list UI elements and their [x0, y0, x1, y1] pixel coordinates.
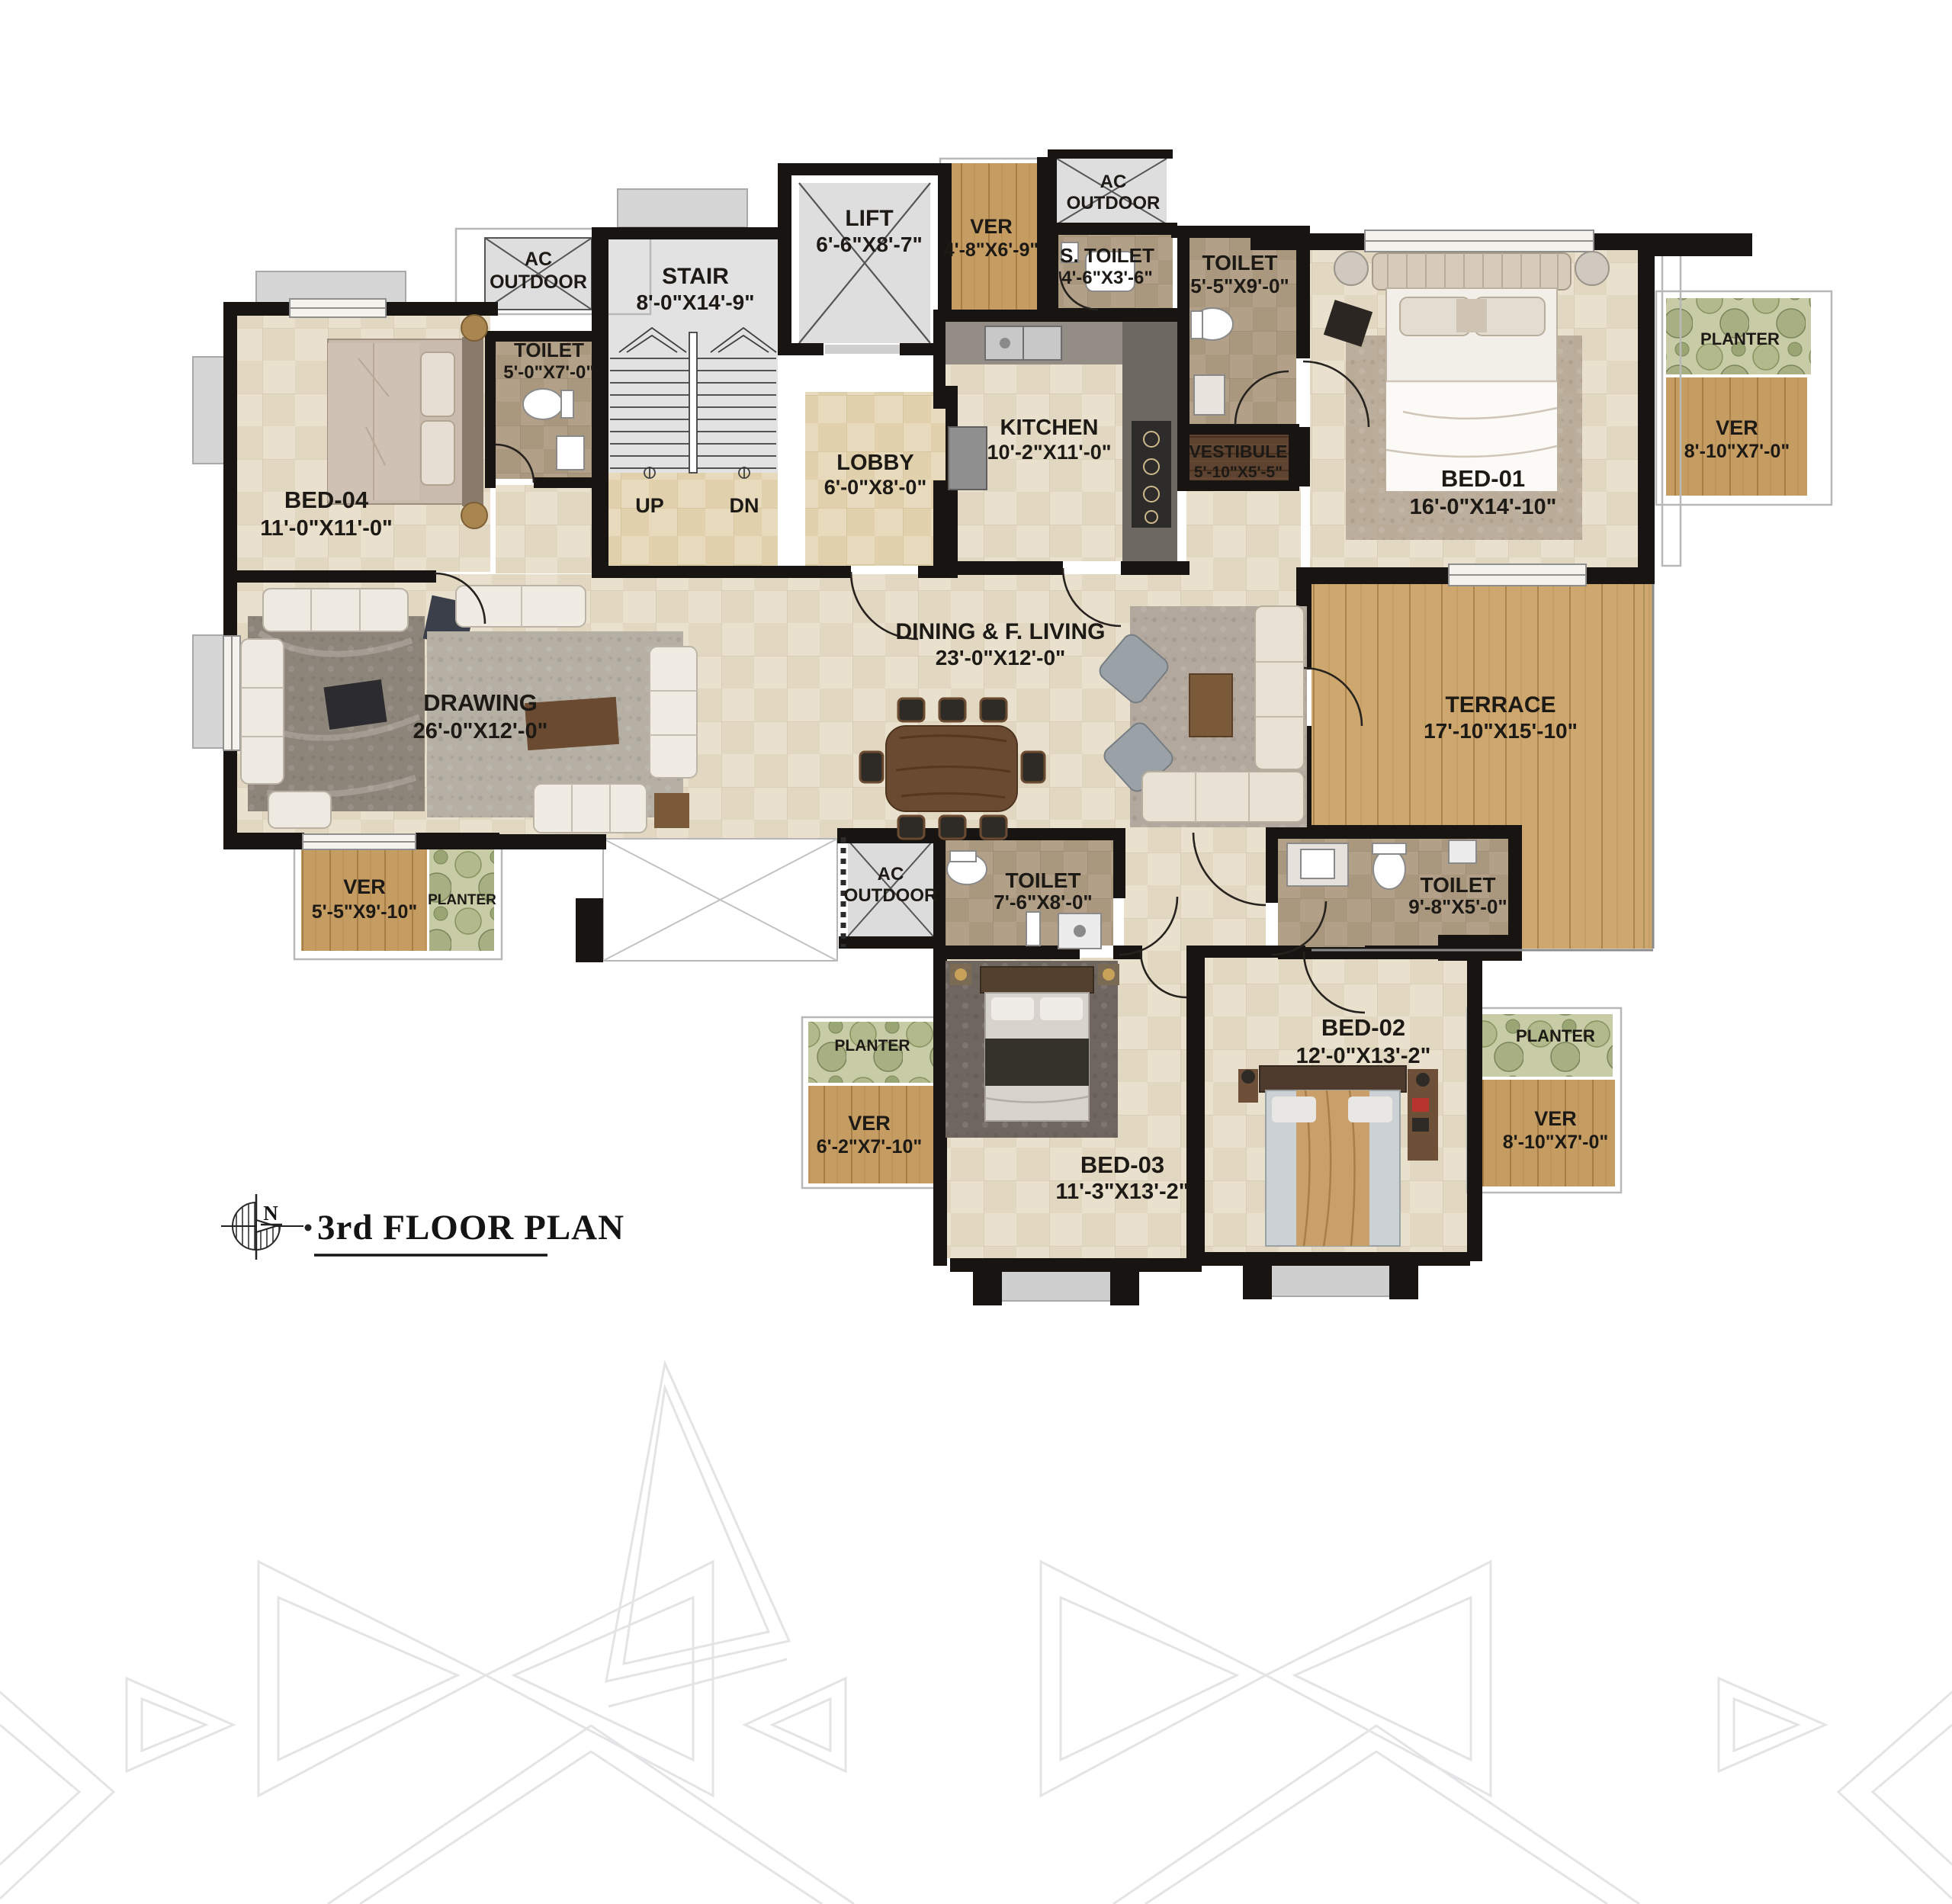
label-lift-dims: 6'-6"X8'-7" [816, 233, 922, 256]
label-toilet-b04-dims: 5'-0"X7'-0" [503, 362, 595, 383]
bed03-furniture [945, 961, 1119, 1138]
label-vestibule: VESTIBULE [1189, 441, 1287, 461]
label-ac-outdoor-tl2: OUTDOOR [490, 271, 587, 293]
label-planter-bl: PLANTER [428, 892, 496, 908]
label-s-toilet: S. TOILET [1060, 244, 1154, 267]
label-terrace: TERRACE [1445, 692, 1555, 718]
label-bed04: BED-04 [284, 486, 369, 513]
floor-plan-page: AC OUTDOOR STAIR 8'-0"X14'-9" LIFT 6'-6"… [0, 0, 1952, 1904]
north-compass-icon: N [221, 1194, 312, 1260]
label-lobby-dims: 6'-0"X8'-0" [824, 476, 927, 499]
label-toilet-b2-dims: 9'-8"X5'-0" [1408, 895, 1507, 918]
north-letter: N [263, 1202, 278, 1225]
label-ac-b2: OUTDOOR [844, 885, 938, 906]
label-planter-tr: PLANTER [1700, 329, 1780, 348]
label-dn: DN [730, 494, 759, 517]
watermark-shapes [0, 1363, 1952, 1904]
label-toilet-top: TOILET [1202, 251, 1277, 275]
label-toilet-b1: TOILET [1005, 869, 1080, 892]
label-bed03: BED-03 [1080, 1151, 1164, 1178]
label-ver-br: VER [1534, 1107, 1577, 1130]
label-ver-top-dims: 4'-8"X6'-9" [944, 239, 1039, 261]
label-stair: STAIR [662, 264, 729, 289]
floor-plan-drawing: AC OUTDOOR STAIR 8'-0"X14'-9" LIFT 6'-6"… [0, 0, 1952, 1904]
label-bed01: BED-01 [1441, 465, 1525, 492]
label-planter-bc: PLANTER [834, 1037, 910, 1055]
label-dining-dims: 23'-0"X12'-0" [936, 646, 1066, 669]
label-ver-tr-dims: 8'-10"X7'-0" [1684, 441, 1790, 462]
label-ac-outdoor-tl: AC [525, 249, 552, 270]
label-ver-bc-dims: 6'-2"X7'-10" [817, 1136, 922, 1157]
label-lobby: LOBBY [836, 451, 914, 475]
label-drawing: DRAWING [423, 689, 538, 716]
label-bed02-dims: 12'-0"X13'-2" [1296, 1044, 1431, 1068]
label-ac-b: AC [878, 864, 904, 885]
label-drawing-dims: 26'-0"X12'-0" [413, 719, 548, 743]
label-s-toilet-dims: 4'-6"X3'-6" [1061, 268, 1153, 288]
label-kitchen: KITCHEN [1000, 416, 1099, 440]
label-ver-br-dims: 8'-10"X7'-0" [1503, 1132, 1608, 1153]
label-up: UP [635, 494, 664, 517]
label-ver-top: VER [970, 215, 1013, 238]
label-kitchen-dims: 10'-2"X11'-0" [987, 441, 1111, 464]
label-ver-bl: VER [343, 875, 386, 898]
label-terrace-dims: 17'-10"X15'-10" [1424, 719, 1578, 743]
label-stair-dims: 8'-0"X14'-9" [636, 291, 754, 314]
label-vestibule-dims: 5'-10"X5'-5" [1194, 464, 1283, 481]
label-ac-top2: OUTDOOR [1067, 193, 1161, 214]
plan-title: 3rd FLOOR PLAN [317, 1208, 624, 1247]
label-bed03-dims: 11'-3"X13'-2" [1055, 1180, 1189, 1204]
label-ac-top: AC [1100, 172, 1127, 192]
label-toilet-top-dims: 5'-5"X9'-0" [1190, 275, 1289, 297]
label-ver-bl-dims: 5'-5"X9'-10" [312, 901, 417, 923]
label-lift: LIFT [845, 206, 893, 231]
label-ver-bc: VER [848, 1112, 891, 1135]
label-bed04-dims: 11'-0"X11'-0" [260, 516, 393, 541]
title-block: N 3rd FLOOR PLAN [221, 1194, 624, 1260]
label-ver-tr: VER [1716, 416, 1758, 439]
label-toilet-b04: TOILET [514, 339, 584, 361]
label-toilet-b1-dims: 7'-6"X8'-0" [994, 891, 1093, 913]
label-toilet-b2: TOILET [1420, 873, 1495, 897]
label-dining: DINING & F. LIVING [895, 619, 1105, 644]
label-planter-br: PLANTER [1516, 1026, 1595, 1045]
label-bed01-dims: 16'-0"X14'-10" [1410, 495, 1557, 519]
label-bed02: BED-02 [1321, 1014, 1405, 1041]
